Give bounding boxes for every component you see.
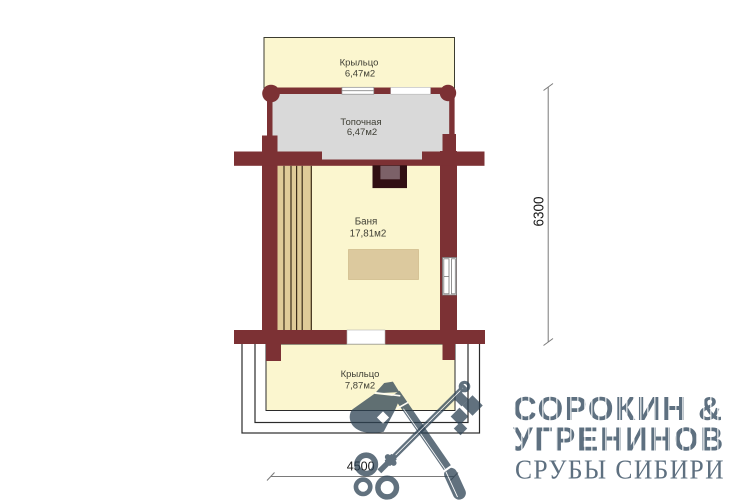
svg-text:Крыльцо: Крыльцо: [341, 369, 380, 380]
svg-text:6300: 6300: [532, 197, 548, 227]
svg-text:СРУБЫ СИБИРИ: СРУБЫ СИБИРИ: [515, 454, 725, 485]
svg-text:Крыльцо: Крыльцо: [340, 58, 379, 69]
svg-text:7,87м2: 7,87м2: [345, 381, 375, 392]
svg-text:Баня: Баня: [355, 217, 378, 228]
svg-text:6,47м2: 6,47м2: [347, 127, 377, 138]
svg-text:6,47м2: 6,47м2: [345, 69, 375, 80]
svg-text:17,81м2: 17,81м2: [350, 229, 387, 240]
